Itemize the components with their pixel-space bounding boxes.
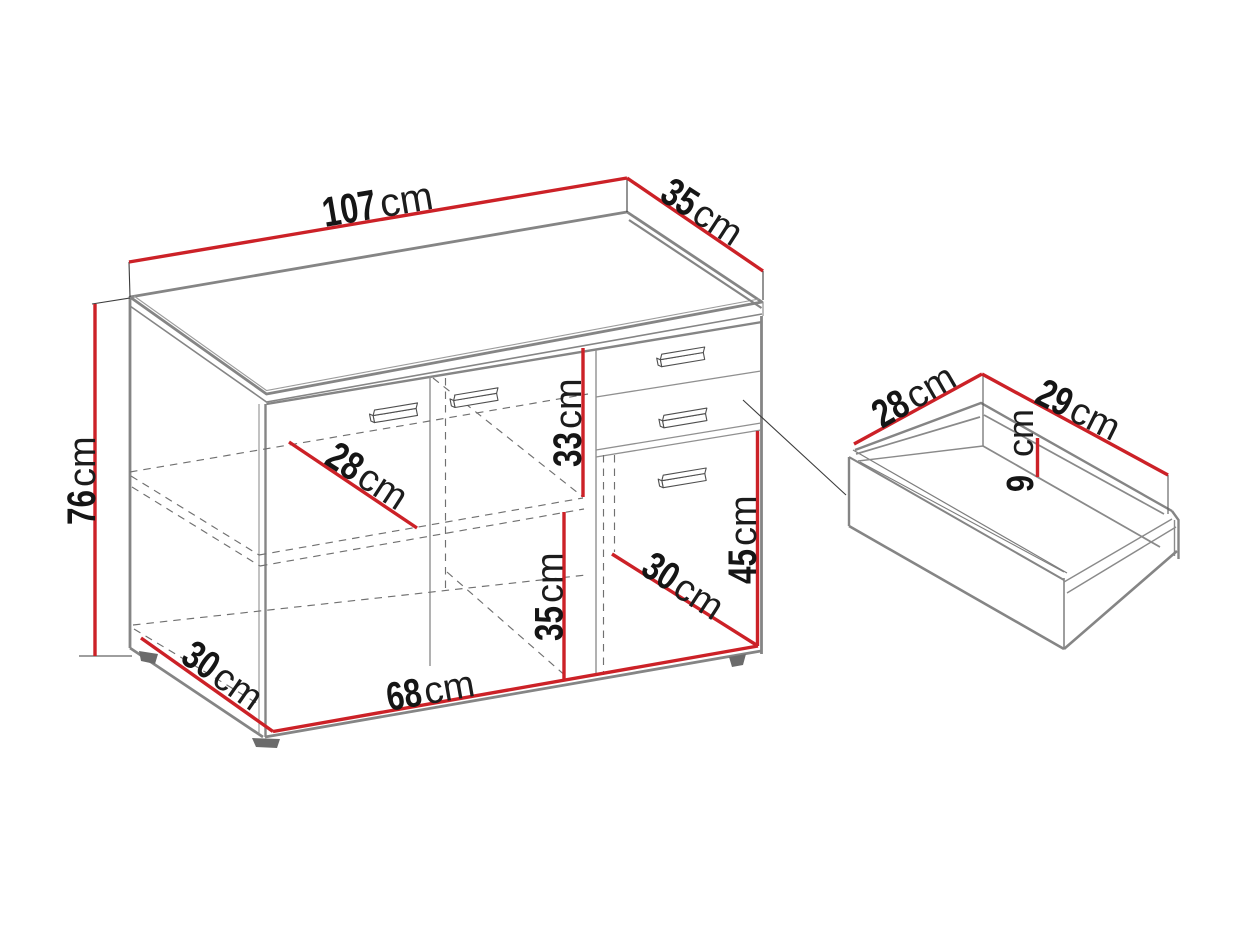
svg-text:107: 107 bbox=[319, 181, 380, 236]
svg-text:cm: cm bbox=[723, 495, 765, 546]
svg-text:9: 9 bbox=[1000, 475, 1042, 492]
svg-text:33: 33 bbox=[546, 432, 590, 467]
svg-text:cm: cm bbox=[530, 552, 572, 603]
svg-text:45: 45 bbox=[721, 549, 765, 584]
svg-text:cm: cm bbox=[1000, 409, 1041, 457]
svg-text:cm: cm bbox=[421, 663, 478, 713]
svg-text:cm: cm bbox=[62, 436, 104, 487]
svg-text:35: 35 bbox=[528, 606, 572, 641]
svg-text:76: 76 bbox=[60, 490, 104, 525]
svg-text:cm: cm bbox=[548, 378, 590, 429]
svg-text:cm: cm bbox=[376, 174, 436, 226]
